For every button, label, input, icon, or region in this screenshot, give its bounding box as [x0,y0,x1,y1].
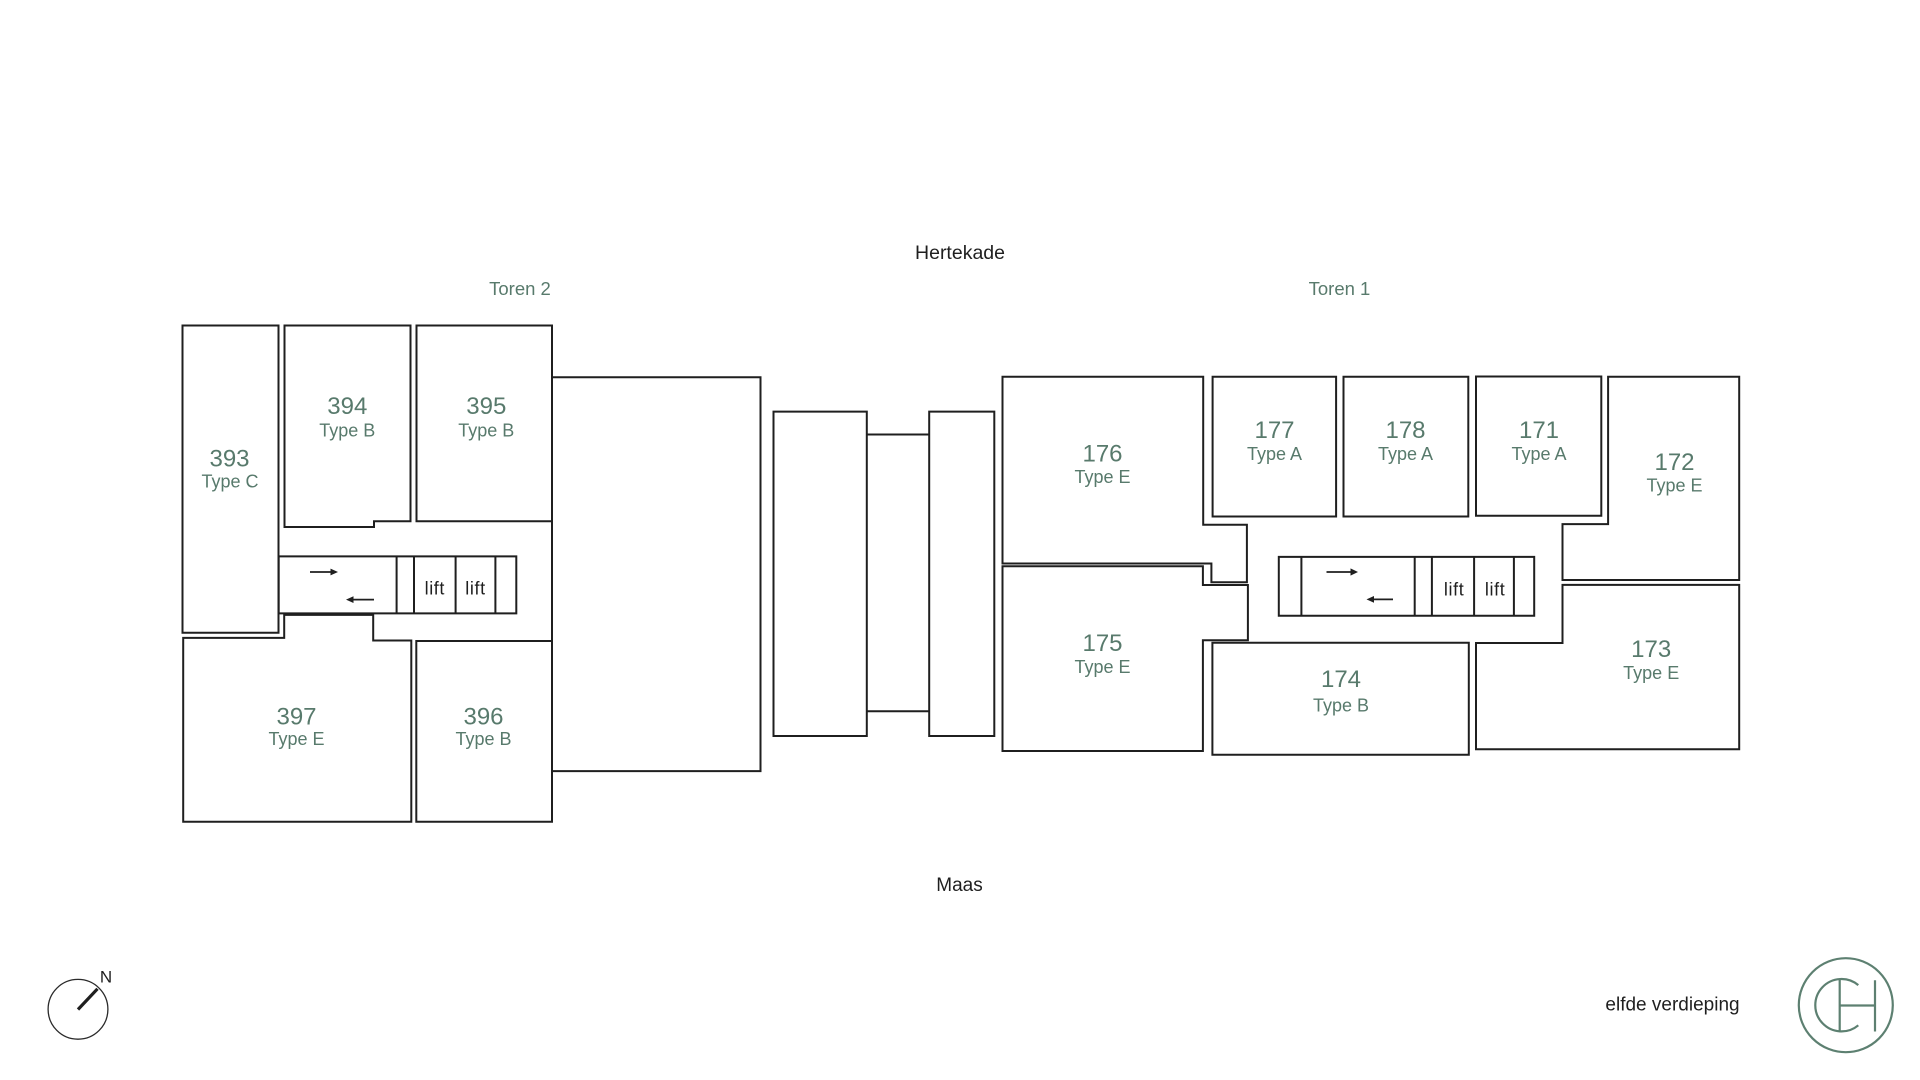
svg-text:Type E: Type E [1074,657,1130,677]
svg-text:Type B: Type B [319,421,375,441]
svg-text:Type B: Type B [458,421,514,441]
svg-text:394: 394 [327,393,367,420]
svg-text:Type B: Type B [455,729,511,749]
svg-text:Toren 2: Toren 2 [489,278,551,299]
svg-text:174: 174 [1321,666,1361,693]
svg-text:N: N [100,968,112,987]
svg-text:Type E: Type E [268,729,324,749]
svg-text:Type C: Type C [201,472,258,492]
svg-text:Type E: Type E [1074,467,1130,487]
svg-text:lift: lift [465,578,485,598]
svg-text:171: 171 [1519,417,1559,444]
svg-text:Type A: Type A [1247,444,1302,464]
svg-text:Maas: Maas [936,875,982,896]
svg-text:lift: lift [1444,579,1464,599]
svg-text:175: 175 [1082,630,1122,657]
svg-text:395: 395 [466,393,506,420]
svg-text:Type E: Type E [1623,663,1679,683]
svg-text:396: 396 [463,703,503,730]
svg-text:176: 176 [1082,441,1122,468]
svg-text:397: 397 [276,703,316,730]
svg-text:172: 172 [1654,449,1694,476]
svg-text:178: 178 [1385,417,1425,444]
svg-text:177: 177 [1254,417,1294,444]
svg-text:elfde verdieping: elfde verdieping [1605,995,1739,1016]
svg-text:Type E: Type E [1646,476,1702,496]
svg-text:Type A: Type A [1378,444,1433,464]
svg-text:Toren 1: Toren 1 [1309,278,1371,299]
svg-text:Type A: Type A [1511,444,1566,464]
svg-text:Type B: Type B [1313,696,1369,716]
svg-text:393: 393 [209,445,249,472]
svg-text:lift: lift [1485,579,1505,599]
svg-text:173: 173 [1631,636,1671,663]
svg-text:Hertekade: Hertekade [915,242,1005,264]
svg-text:lift: lift [425,578,445,598]
